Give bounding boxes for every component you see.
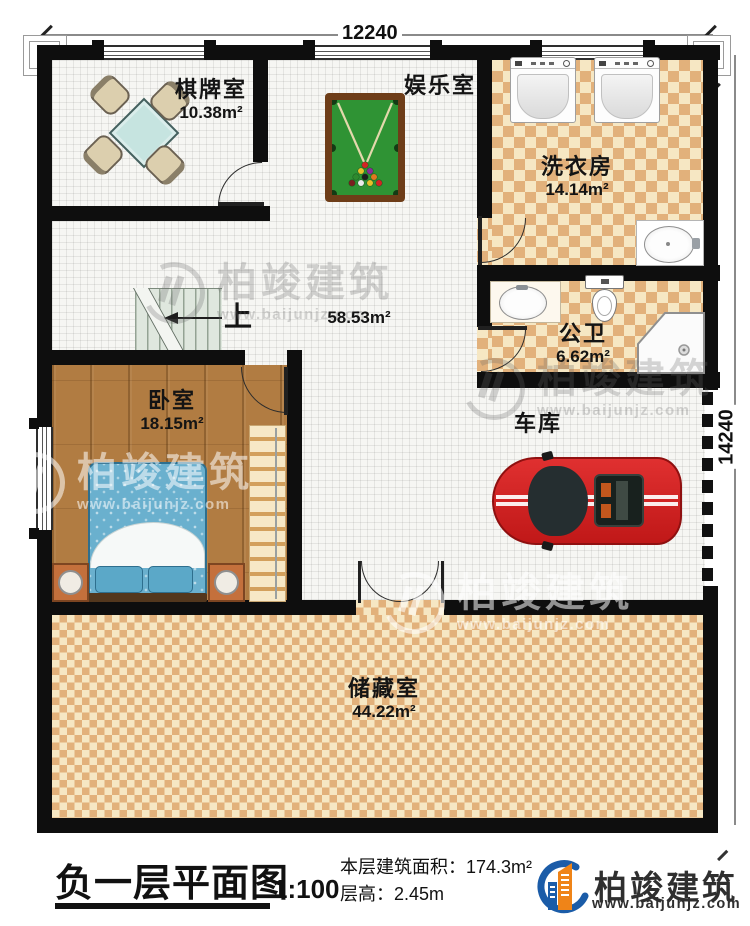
headboard bbox=[88, 593, 207, 602]
pool-cues bbox=[332, 100, 398, 195]
toilet-seat bbox=[597, 296, 612, 316]
billiard-ball bbox=[349, 180, 355, 186]
garage-door-opening bbox=[702, 392, 713, 586]
washer-drum bbox=[601, 74, 653, 119]
billiard-ball bbox=[358, 168, 364, 174]
washer-control-panel bbox=[595, 58, 659, 69]
bath-door-leaf bbox=[478, 326, 527, 330]
pool-table bbox=[325, 93, 405, 202]
bath-sink-counter bbox=[490, 281, 561, 323]
washer-buttons bbox=[615, 62, 620, 65]
wall-storage-top-right bbox=[444, 600, 705, 615]
stray-mark bbox=[717, 850, 728, 861]
floor-area-text: 本层建筑面积：174.3m² bbox=[340, 853, 532, 879]
billiard-ball bbox=[367, 168, 373, 174]
wall-nub bbox=[303, 40, 315, 50]
wall-nub bbox=[204, 40, 216, 50]
room-label-laundry: 洗衣房 14.14m² bbox=[522, 154, 632, 200]
wall-right-lower bbox=[703, 586, 718, 833]
nightstand bbox=[208, 563, 245, 602]
storage-door-left-leaf bbox=[358, 561, 361, 603]
toilet bbox=[585, 275, 624, 325]
pillow bbox=[148, 566, 193, 593]
room-label-storage: 储藏室 44.22m² bbox=[329, 676, 439, 722]
billiard-ball bbox=[358, 180, 364, 186]
corner-shower bbox=[637, 312, 705, 374]
car-engine-cover bbox=[594, 474, 644, 527]
wall-bath-bottom bbox=[477, 372, 720, 388]
chess-room-door-leaf bbox=[218, 202, 264, 206]
floor-plan-page: 12240 14240 上 bbox=[0, 0, 750, 926]
billiard-ball bbox=[353, 174, 359, 180]
engine-part bbox=[601, 483, 611, 497]
storage-door-right-leaf bbox=[441, 561, 444, 603]
sink-faucet bbox=[692, 238, 700, 249]
wall-chess-bottom bbox=[37, 206, 270, 221]
washer-knob bbox=[515, 61, 522, 66]
pillow bbox=[95, 566, 143, 593]
washer-drum bbox=[517, 74, 569, 119]
room-label-hall-area: 58.53m² bbox=[309, 308, 409, 328]
billiard-ball bbox=[362, 174, 368, 180]
billiard-ball bbox=[367, 180, 373, 186]
billiard-ball bbox=[376, 180, 382, 186]
plan-title: 负一层平面图 bbox=[55, 852, 289, 907]
wall-nub bbox=[92, 40, 104, 50]
plan-scale: 1:100 bbox=[273, 874, 340, 905]
laundry-door-leaf bbox=[478, 216, 482, 265]
sink-drain bbox=[666, 242, 670, 246]
pool-felt bbox=[332, 100, 398, 195]
storage-doorway-floor bbox=[356, 600, 444, 615]
room-label-bedroom: 卧室 18.15m² bbox=[117, 388, 227, 434]
wardrobe-rail bbox=[275, 428, 277, 599]
table-lamp bbox=[58, 570, 83, 595]
billiard-ball bbox=[371, 174, 377, 180]
washing-machine bbox=[510, 57, 576, 123]
room-label-garage: 车库 bbox=[483, 411, 593, 437]
stair-up-label: 上 bbox=[224, 300, 252, 333]
engine-part bbox=[616, 481, 628, 520]
wall-right-upper bbox=[703, 45, 718, 390]
engine-part bbox=[601, 504, 611, 518]
room-label-bath: 公卫 6.62m² bbox=[528, 321, 638, 367]
washer-buttons bbox=[531, 62, 536, 65]
washer-dial bbox=[563, 60, 570, 67]
wall-storage-top-left bbox=[37, 600, 356, 615]
wardrobe bbox=[249, 425, 286, 602]
window-bedroom bbox=[36, 427, 53, 530]
nightstand bbox=[52, 563, 89, 602]
toilet-flush-button bbox=[601, 279, 609, 284]
wall-bedroom-right bbox=[287, 350, 302, 615]
car bbox=[492, 457, 682, 545]
wall-nub bbox=[530, 40, 542, 50]
washer-knob bbox=[599, 61, 606, 66]
laundry-sink-counter bbox=[636, 220, 704, 266]
table-lamp bbox=[214, 570, 239, 595]
wall-nub bbox=[29, 418, 39, 429]
washing-machine bbox=[594, 57, 660, 123]
sink-basin bbox=[499, 286, 547, 320]
car-windshield bbox=[528, 466, 588, 536]
wall-bottom bbox=[37, 818, 718, 833]
toilet-tank bbox=[585, 275, 624, 289]
wall-nub bbox=[29, 528, 39, 539]
title-underline bbox=[55, 903, 270, 909]
bedroom-door-leaf bbox=[284, 367, 288, 415]
room-label-entertainment: 娱乐室 bbox=[395, 73, 485, 99]
wall-nub bbox=[430, 40, 442, 50]
billiard-ball bbox=[362, 162, 368, 168]
bed bbox=[88, 462, 207, 602]
stair-direction-arrow bbox=[178, 317, 222, 319]
floor-height-text: 层高：2.45m bbox=[340, 880, 444, 906]
window-top-1 bbox=[104, 45, 204, 60]
top-dimension-label: 12240 bbox=[338, 22, 402, 45]
wall-bedroom-top bbox=[37, 350, 245, 365]
sink-faucet bbox=[516, 285, 528, 290]
brand-logo-icon bbox=[536, 858, 590, 916]
washer-control-panel bbox=[511, 58, 575, 69]
toilet-bowl bbox=[592, 289, 617, 322]
window-top-2 bbox=[315, 45, 430, 60]
washer-dial bbox=[647, 60, 654, 67]
room-label-chess: 棋牌室 10.38m² bbox=[156, 77, 266, 123]
brand-website: www.baijunjz.com bbox=[592, 896, 741, 912]
right-dimension-label: 14240 bbox=[716, 405, 739, 469]
wall-nub bbox=[643, 40, 655, 50]
stair-arrow-head bbox=[164, 312, 178, 324]
